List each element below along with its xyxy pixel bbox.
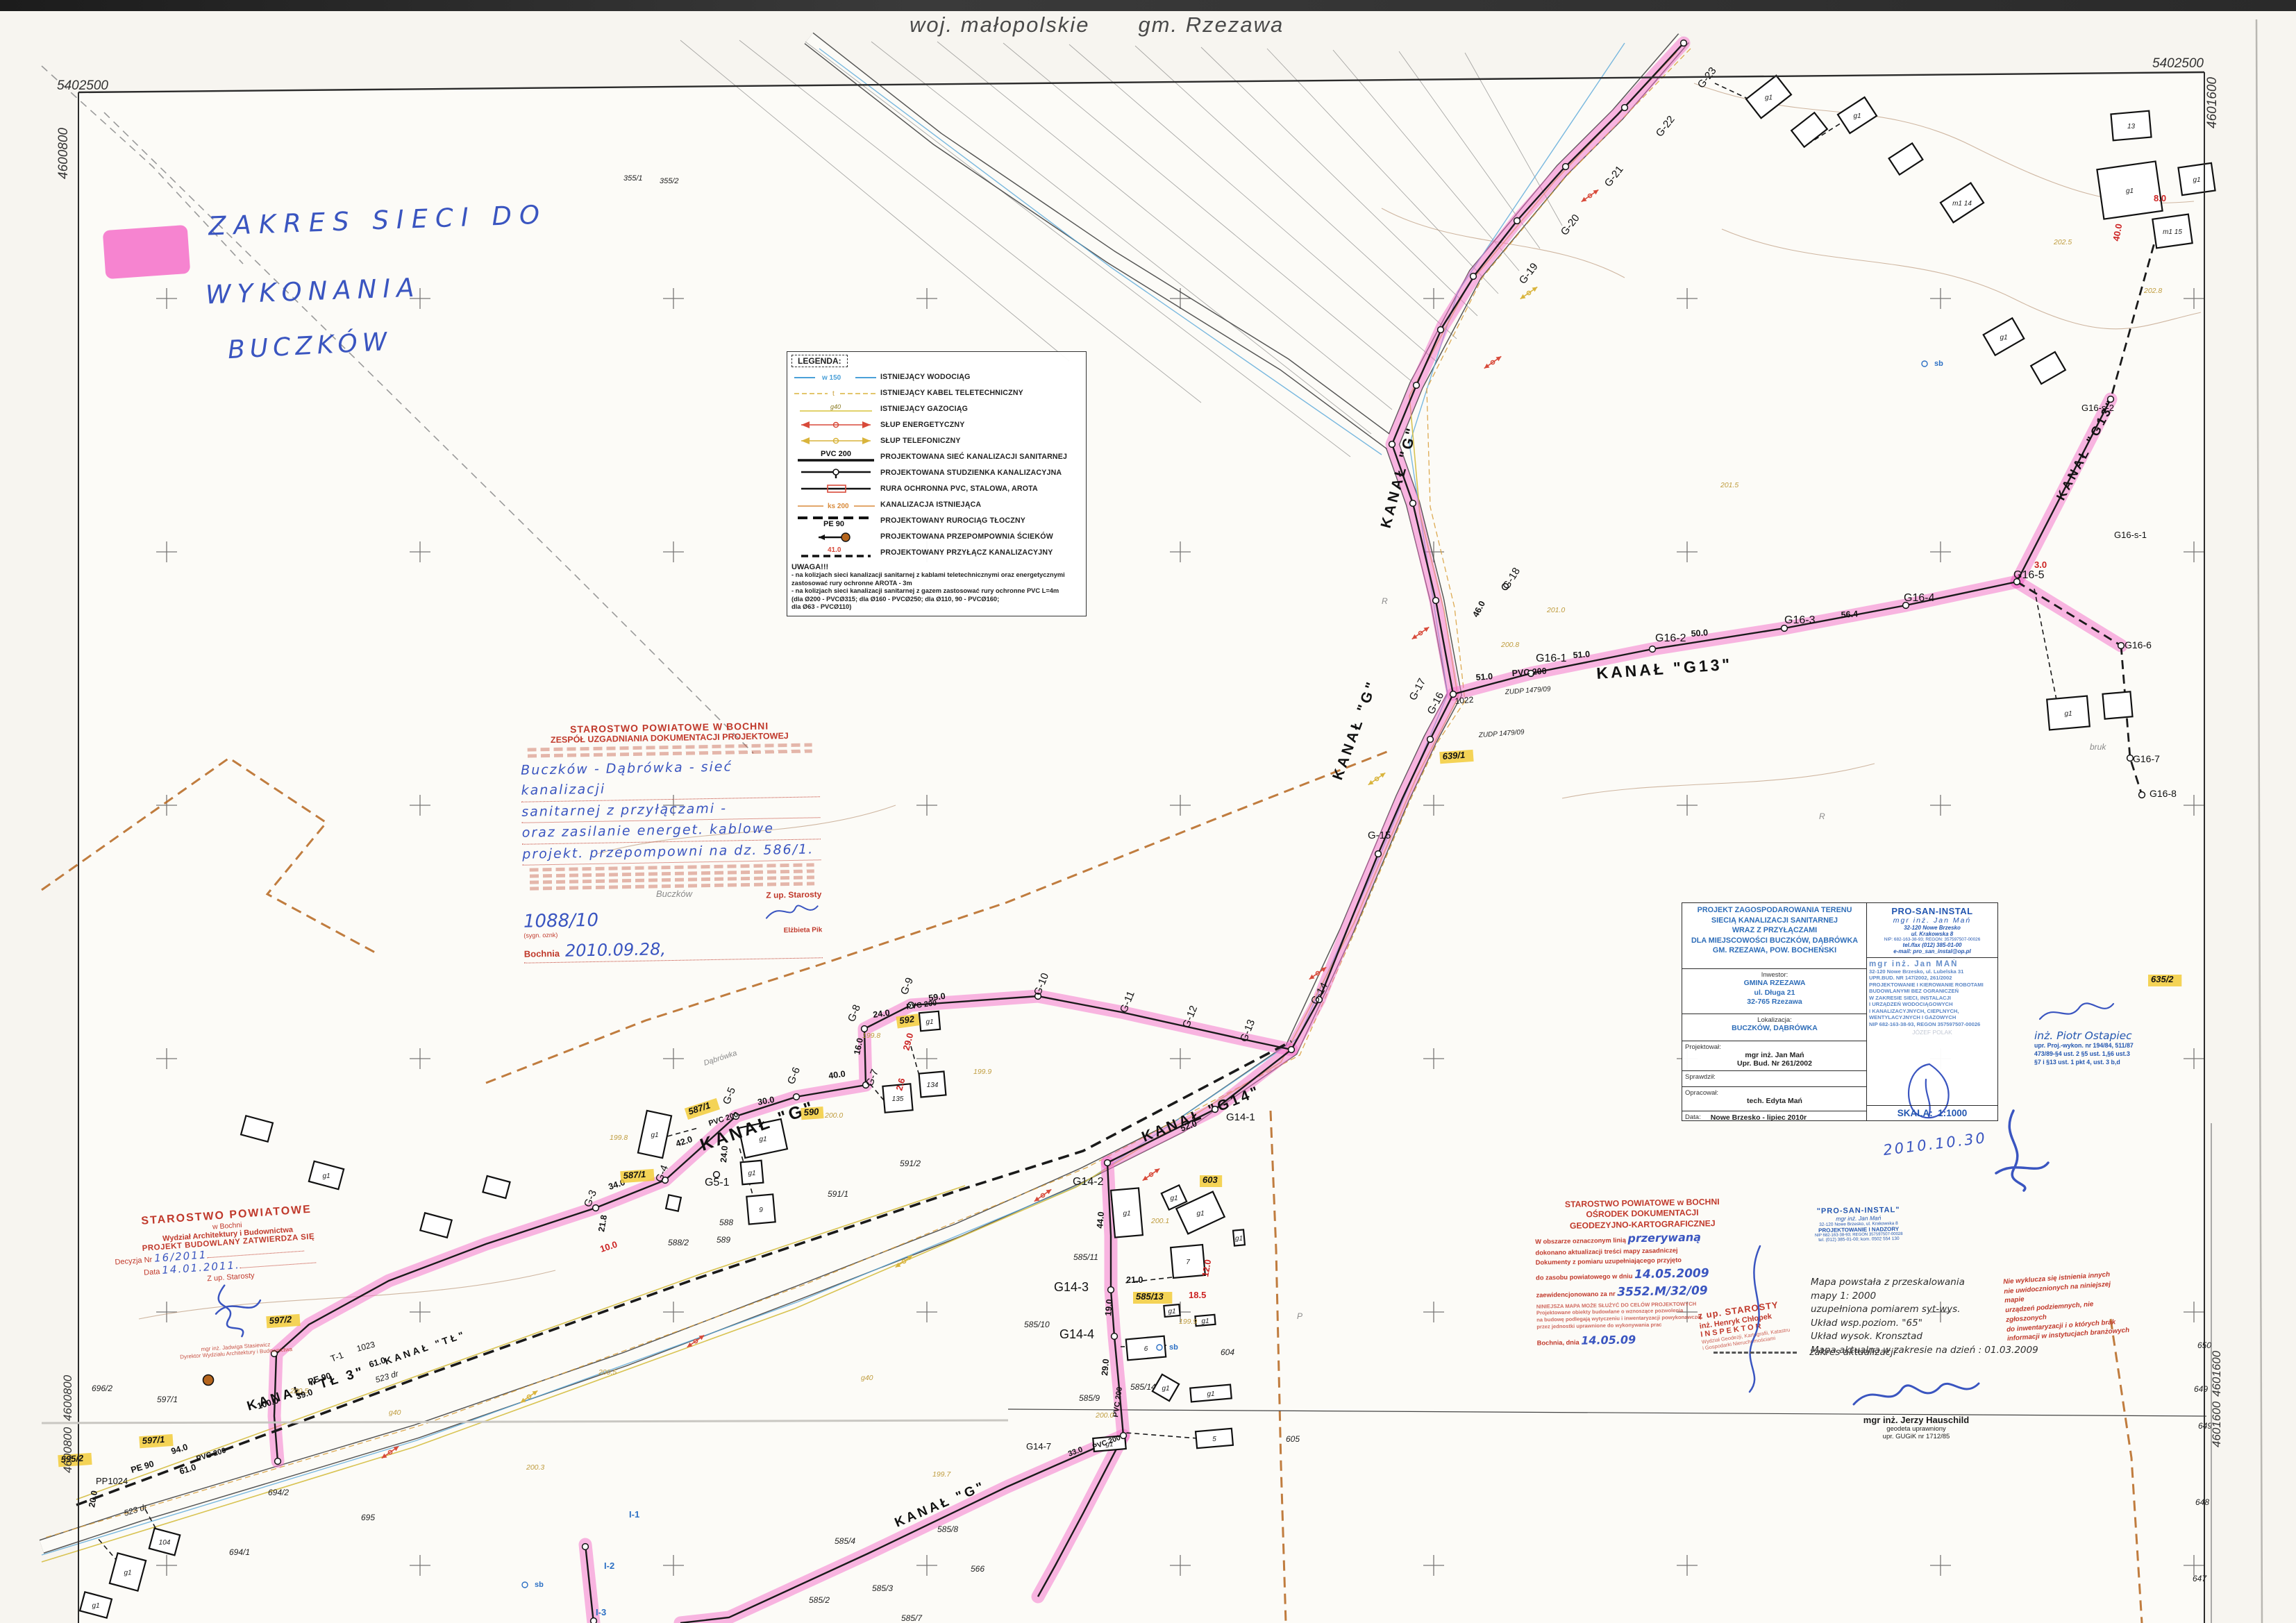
manhole-label: G16-5	[2013, 569, 2045, 581]
manhole-symbol	[794, 1094, 800, 1100]
manhole-symbol	[583, 1544, 589, 1550]
building-label: g1	[322, 1172, 330, 1180]
stamp-caption: (sygn. oznk)	[523, 931, 598, 939]
manhole-symbol	[1514, 218, 1520, 224]
prepared-by-label: Opracował:	[1685, 1089, 1864, 1097]
distance-label: 24.0	[719, 1145, 730, 1163]
designer-label: Projektował:	[1685, 1043, 1864, 1051]
manhole-symbol	[1650, 646, 1656, 653]
elevation-label: 200.5	[290, 1387, 308, 1395]
parcel-number: 566	[971, 1564, 984, 1574]
building-label: g1	[1765, 94, 1773, 102]
parcel-number: 355/1	[623, 174, 643, 183]
building-label: 135	[892, 1095, 904, 1103]
manhole-symbol	[1112, 1334, 1118, 1340]
building-label: g1	[92, 1602, 99, 1610]
parcel-number: 649	[2194, 1384, 2208, 1394]
elevation-label: 200.5	[598, 1368, 617, 1377]
handwritten-date: 2010.09.28,	[565, 939, 667, 961]
manhole-label: G14-7	[1026, 1441, 1051, 1452]
building-label: m1 14	[1952, 200, 1972, 208]
handwritten-agreement-line: projekt. przepompowni na dz. 586/1.	[522, 839, 821, 866]
manhole-symbol	[1414, 382, 1420, 389]
title-block-right: PRO-SAN-INSTAL mgr inż. Jan Mań 32-120 N…	[1866, 902, 1998, 1121]
telecom-line-icon: t	[791, 387, 880, 398]
parcel-number: 592	[898, 1014, 915, 1026]
parcel-number: 694/1	[229, 1547, 250, 1557]
red-annotation: 18.5	[1189, 1290, 1206, 1300]
parcel-number: 635/2	[2151, 974, 2174, 984]
scanned-map-page: g1g1m1 1413g1m1 15g1g1g1g19g1g1135134g1g…	[0, 0, 2296, 1623]
manhole-label: G16-8	[2150, 788, 2177, 799]
legend-item-label: SŁUP ENERGETYCZNY	[880, 421, 965, 429]
manhole-symbol	[1427, 737, 1434, 743]
building-label: g1	[124, 1570, 131, 1577]
manhole-label: PP1024	[96, 1476, 128, 1486]
manhole-label: G5-1	[705, 1177, 730, 1188]
parcel-number: 647	[2193, 1574, 2207, 1583]
elevation-label: 202.5	[2053, 238, 2072, 246]
manhole-symbol	[1289, 1047, 1295, 1053]
building-label: 104	[159, 1539, 171, 1547]
building-label: 5	[1212, 1436, 1216, 1443]
building-label: g1	[1196, 1210, 1204, 1218]
svg-text:ks 200: ks 200	[828, 503, 849, 510]
parcel-number: 585/13	[1136, 1291, 1164, 1302]
coordinate-label: 4601600	[2210, 1350, 2223, 1397]
legend-item: ks 200 KANALIZACJA ISTNIEJĄCA	[791, 496, 1082, 512]
signature	[1975, 1104, 2052, 1194]
region-title: woj. małopolskiegm. Rzezawa	[910, 12, 1332, 37]
parcel-number: 603	[1203, 1175, 1218, 1185]
manhole-symbol	[1563, 164, 1569, 170]
location-label: Lokalizacja:	[1685, 1016, 1864, 1024]
parcel-number: 585/11	[1073, 1252, 1098, 1262]
investor-name: GMINA RZEZAWA	[1685, 979, 1864, 989]
legend-item: t ISTNIEJĄCY KABEL TELETECHNICZNY	[791, 385, 1082, 401]
voivodeship-label: woj. małopolskie	[910, 12, 1089, 37]
building-label: m1 15	[2163, 228, 2182, 236]
scale-value: 1:1000	[1938, 1108, 1967, 1118]
coordinate-label: 4601600	[2210, 1401, 2223, 1447]
elevation-label: g40	[389, 1408, 401, 1417]
legend-note: - na kolizjach sieci kanalizacji sanitar…	[791, 587, 1082, 596]
distance-label: 56.4	[1841, 609, 1858, 620]
phone-pole-icon	[791, 435, 880, 446]
legend-item: PVC 200 PROJEKTOWANA SIEĆ KANALIZACJI SA…	[791, 448, 1082, 464]
investor-address: ul. Długa 21	[1685, 989, 1864, 998]
parcel-number: 639/1	[1442, 750, 1466, 762]
pro-san-instal-stamp: "PRO-SAN-INSTAL" mgr inż. Jan Mań 32-120…	[1800, 1206, 1918, 1243]
coordinate-label: 4601600	[2205, 77, 2220, 128]
manhole-label: G16-1	[1536, 653, 1567, 664]
building-label: g1	[748, 1170, 755, 1177]
project-title-line: GM. RZEZAWA, POW. BOCHEŃSKI	[1685, 945, 1864, 956]
surveyor-signature-block: mgr inż. Jerzy Hauschild geodeta uprawni…	[1847, 1378, 1986, 1440]
building-label: g1	[1207, 1390, 1214, 1398]
handwritten-date: 14.05.09	[1581, 1333, 1636, 1347]
map-label: sb	[1169, 1343, 1178, 1352]
legend-note: (dla Ø200 - PVCØ315; dla Ø160 - PVCØ250;…	[791, 596, 1082, 604]
date-value: Nowe Brzesko - lipiec 2010r	[1711, 1113, 1807, 1122]
designer-stamp-line: W ZAKRESIE SIECI, INSTALACJI	[1869, 995, 1995, 1001]
stamp-signer-name: Elżbieta Pik	[760, 926, 822, 935]
parcel-number: 588/2	[668, 1238, 689, 1247]
building-label: g1	[1201, 1318, 1209, 1325]
legend-item-label: RURA OCHRONNA PVC, STALOWA, AROTA	[880, 485, 1038, 493]
manhole-symbol	[1438, 327, 1444, 333]
update-scope-label: zakres aktualizacji	[1809, 1347, 1895, 1358]
pressure-pipe-icon: PE 90	[791, 514, 880, 528]
handwritten-number: 3552.M/32/09	[1617, 1284, 1708, 1300]
building-label: g1	[1162, 1385, 1169, 1393]
svg-text:41.0: 41.0	[828, 546, 841, 554]
parcel-number: 604	[1221, 1347, 1234, 1357]
manhole-symbol	[1108, 1287, 1114, 1293]
distance-label: 50.0	[1691, 628, 1708, 639]
building-label: g1	[2064, 710, 2072, 718]
manhole-label: G16-4	[1904, 592, 1935, 604]
legend-item-label: PROJEKTOWANA STUDZIENKA KANALIZACYJNA	[880, 469, 1062, 477]
legend-item: SŁUP TELEFONICZNY	[791, 432, 1082, 448]
building-label: g1	[2193, 176, 2200, 184]
projected-sewer-icon: PVC 200	[791, 450, 880, 464]
red-annotation: 8.0	[2154, 193, 2166, 203]
coordinate-label: 4600800	[61, 1374, 74, 1421]
company-email: e-mail: pro_san_instal@op.pl	[1868, 948, 1996, 955]
building-label: g1	[1853, 112, 1861, 120]
distance-label: 51.0	[1475, 671, 1493, 682]
manhole-symbol	[1470, 274, 1477, 280]
legend-item: w 150 ISTNIEJĄCY WODOCIĄG	[791, 369, 1082, 385]
legend-item-label: PROJEKTOWANA PRZEPOMPOWNIA ŚCIEKÓW	[880, 532, 1053, 541]
engineer-license-line: upr. Proj.-wykon. nr 194/84, 511/87	[2034, 1042, 2194, 1050]
parcel-number: 589	[717, 1235, 730, 1245]
legend-note: zastosować rury ochronne AROTA - 3m	[791, 580, 1082, 588]
designer-stamp-name: mgr inż. Jan MAŃ	[1869, 960, 1995, 968]
handwritten-word: przerywaną	[1627, 1230, 1701, 1245]
manhole-label: G16-s-2	[2081, 403, 2114, 413]
elevation-label: 199.8	[862, 1032, 880, 1040]
company-address: 32-120 Nowe Brzesko	[1868, 925, 1996, 931]
manhole-symbol	[2118, 643, 2125, 649]
engineer-license-line: §7 i §13 ust. 1 pkt 4, ust. 3 b,d	[2034, 1059, 2194, 1067]
svg-text:g40: g40	[830, 403, 841, 410]
manhole-icon	[791, 466, 880, 479]
parcel-number: 585/2	[809, 1595, 830, 1605]
stamp-text: do zasobu powiatowego w dniu	[1536, 1272, 1633, 1281]
parcel-number: 695	[361, 1513, 375, 1522]
manhole-symbol	[1433, 598, 1439, 604]
coordinate-label: 4600800	[56, 128, 71, 179]
building-label: 13	[2127, 123, 2136, 131]
map-label: I-3	[596, 1607, 606, 1617]
legend-note-title: UWAGA!!!	[791, 563, 1082, 571]
coordinate-label: 4600800	[61, 1427, 74, 1473]
company-name: PRO-SAN-INSTAL	[1868, 906, 1996, 916]
designer-license: Upr. Bud. Nr 261/2002	[1685, 1059, 1864, 1068]
manhole-label: 1022	[1455, 695, 1474, 706]
map-note-line: Układ wysok. Kronsztad	[1811, 1330, 2040, 1344]
company-phone: tel./fax (012) 385-01-00	[1868, 942, 1996, 948]
manhole-label: G16-3	[1784, 614, 1816, 626]
legend-item-label: PROJEKTOWANA SIEĆ KANALIZACJI SANITARNEJ	[880, 453, 1067, 461]
distance-label: 51.0	[1573, 649, 1590, 660]
parcel-number: 585/9	[1079, 1393, 1100, 1403]
elevation-label: 201.5	[1720, 481, 1738, 489]
designer-stamp-line: BUDOWLANYMI BEZ OGRANICZEŃ	[1869, 988, 1995, 994]
location-value: BUCZKÓW, DĄBRÓWKA	[1685, 1024, 1864, 1034]
parcel-number: 355/2	[660, 177, 679, 185]
investor-label: Inwestor:	[1685, 971, 1864, 979]
parcel-number: 585/10	[1024, 1320, 1050, 1329]
elevation-label: g40	[861, 1374, 873, 1382]
map-label: bruk	[2090, 742, 2106, 752]
surveyor-license: upr. GUGiK nr 1712/85	[1847, 1433, 1986, 1440]
building-label: 134	[927, 1082, 939, 1089]
designer-stamp-line: I URZĄDZEŃ WODOCIĄGOWYCH	[1869, 1001, 1995, 1007]
manhole-label: G14-4	[1059, 1327, 1094, 1341]
project-title-line: DLA MIEJSCOWOŚCI BUCZKÓW, DĄBRÓWKA	[1685, 936, 1864, 946]
water-line-icon: w 150	[791, 371, 880, 382]
manhole-label: G16-2	[1655, 632, 1686, 644]
house-connection-icon: 41.0	[791, 546, 880, 560]
designer-stamp-line: 32-120 Nowe Brzesko, ul. Lubelska 31	[1869, 968, 1995, 975]
existing-sewer-icon: ks 200	[791, 499, 880, 510]
elevation-label: 199.7	[932, 1470, 951, 1479]
manhole-symbol	[1622, 105, 1628, 111]
svg-text:w 150: w 150	[821, 374, 841, 382]
date-label: Data:	[1685, 1113, 1701, 1122]
legend-title: LEGENDA:	[791, 355, 848, 367]
manhole-label: G14-2	[1073, 1176, 1104, 1188]
svg-text:PE 90: PE 90	[823, 520, 844, 528]
map-label: sb	[535, 1581, 544, 1589]
legend-note: - na kolizjach sieci kanalizacji sanitar…	[791, 571, 1082, 580]
building-label: g1	[651, 1132, 658, 1139]
parcel-number: 648	[2195, 1497, 2209, 1507]
elevation-label: 200.1	[1150, 1217, 1169, 1225]
building-label: 6	[1144, 1345, 1148, 1353]
building-permit-stamp: STAROSTWO POWIATOWE w Bochni Wydział Arc…	[112, 1202, 351, 1365]
manhole-label: G16-s-1	[2114, 530, 2147, 540]
building	[2103, 691, 2133, 718]
parcel-number: 605	[1286, 1434, 1300, 1444]
designer-stamp-line: UPR.BUD. NR 147/2002, 261/2002	[1869, 975, 1995, 981]
manhole-symbol	[2139, 792, 2145, 798]
pink-highlighter-swatch	[103, 225, 191, 279]
elevation-label: 201.0	[1546, 606, 1565, 614]
date-label: Data	[144, 1268, 160, 1277]
parcel-number: 696/2	[92, 1384, 112, 1393]
stamp-text: W obszarze oznaczonym linią	[1535, 1236, 1626, 1245]
svg-text:t: t	[832, 390, 835, 398]
elevation-label: 200.0	[824, 1111, 843, 1120]
legend-item: PROJEKTOWANA STUDZIENKA KANALIZACYJNA	[791, 464, 1082, 480]
signature	[1722, 1243, 1784, 1395]
legend-item-label: SŁUP TELEFONICZNY	[880, 437, 961, 445]
map-label: P	[1297, 1311, 1302, 1321]
manhole-symbol	[591, 1618, 597, 1623]
legend-item: RURA OCHRONNA PVC, STALOWA, AROTA	[791, 480, 1082, 496]
pump-station-symbol	[203, 1375, 214, 1386]
signature	[1847, 1378, 1986, 1411]
manhole-label: G16-7	[2133, 753, 2160, 764]
project-title-line: PROJEKT ZAGOSPODAROWANIA TERENU	[1685, 905, 1864, 916]
building-label: g1	[925, 1018, 933, 1026]
elevation-label: 200.3	[526, 1463, 544, 1472]
parcel-number: 585/7	[901, 1613, 923, 1623]
legend-item: PROJEKTOWANA PRZEPOMPOWNIA ŚCIEKÓW	[791, 528, 1082, 544]
manhole-symbol	[1410, 501, 1416, 507]
building-label: g1	[1235, 1235, 1243, 1243]
manhole-label: G16-6	[2125, 639, 2152, 650]
svg-text:PVC 200: PVC 200	[821, 450, 851, 458]
stamp-text: zaewidencjonowano za nr	[1536, 1290, 1615, 1299]
building-label: g1	[1170, 1195, 1178, 1202]
map-label: R	[1382, 596, 1388, 606]
building-label: 9	[759, 1206, 763, 1214]
elevation-label: 199.9	[973, 1068, 991, 1076]
elevation-label: 199.9	[1179, 1318, 1197, 1326]
update-scope-note: zakres aktualizacji	[1713, 1347, 1896, 1358]
building-label: g1	[1123, 1210, 1130, 1218]
legend-box: LEGENDA: w 150 ISTNIEJĄCY WODOCIĄG t IST…	[787, 351, 1087, 616]
title-block: PROJEKT ZAGOSPODAROWANIA TERENU SIECIĄ K…	[1682, 902, 1868, 1121]
engineer-license-line: 473/89-§4 ust. 2 §5 ust. 1,§6 ust.3	[2034, 1050, 2194, 1059]
legend-item-label: KANALIZACJA ISTNIEJĄCA	[880, 501, 981, 509]
pump-station-icon	[791, 531, 880, 542]
building-label: g1	[759, 1136, 766, 1143]
parcel-number: 597/1	[157, 1395, 178, 1404]
parcel-number: 694/2	[268, 1488, 289, 1497]
coordinate-label: 5402500	[2152, 56, 2204, 71]
zudp-stamp: STAROSTWO POWIATOWE W BOCHNI ZESPÓŁ UZGA…	[520, 719, 823, 964]
scan-edge	[2256, 19, 2262, 1623]
casing-pipe-icon	[791, 483, 880, 494]
manhole-label: G14-3	[1054, 1280, 1089, 1294]
prepared-by-name: tech. Edyta Mań	[1685, 1097, 1864, 1105]
parcel-number: 585/8	[937, 1524, 958, 1534]
company-address: ul. Krakowska 8	[1868, 931, 1996, 937]
manhole-symbol	[275, 1458, 281, 1465]
ostapiec-stamp: inż. Piotr Ostapiec upr. Proj.-wykon. nr…	[2034, 998, 2194, 1067]
legend-item-label: PROJEKTOWANY RUROCIĄG TŁOCZNY	[880, 516, 1025, 525]
scale-label: SKALA:	[1897, 1108, 1933, 1118]
map-label: R	[1819, 811, 1825, 821]
coordinate-label: 5402500	[57, 78, 108, 93]
checker-label: Sprawdził:	[1685, 1073, 1864, 1081]
commune-label: gm. Rzezawa	[1138, 12, 1284, 37]
handwritten-reference-number: 1088/10	[523, 910, 599, 932]
elevation-label: 202.8	[2143, 287, 2162, 295]
building-label: 7	[1186, 1259, 1190, 1266]
legend-item-label: ISTNIEJĄCY GAZOCIĄG	[880, 405, 968, 413]
designer-stamp-line: PROJEKTOWANIE I KIEROWANIE ROBOTAMI	[1869, 982, 1995, 988]
signature	[760, 899, 823, 924]
manhole-label: G-15	[1368, 830, 1391, 841]
legend-item: g40 ISTNIEJĄCY GAZOCIĄG	[791, 401, 1082, 417]
stamp-city-label: Bochnia, dnia	[1537, 1339, 1579, 1347]
building-label: g1	[2000, 334, 2007, 342]
manhole-symbol	[1681, 40, 1687, 47]
legend-item-label: ISTNIEJĄCY WODOCIĄG	[880, 373, 971, 381]
manhole-label: G14-1	[1226, 1111, 1255, 1123]
map-label: I-2	[604, 1561, 614, 1571]
manhole-symbol	[1389, 442, 1396, 448]
legend-item-label: PROJEKTOWANY PRZYŁĄCZ KANALIZACYJNY	[880, 548, 1053, 557]
power-pole-icon	[791, 419, 880, 430]
stamp-city-label: Bochnia	[524, 948, 560, 959]
dashed-line-sample	[1713, 1352, 1797, 1354]
overlapping-stamp-name: JÓZEF POLAK	[1869, 1029, 1995, 1036]
investor-address: 32-765 Rzezawa	[1685, 998, 1864, 1007]
designer-stamp-line: WENTYLACYJNYCH I GAZOWYCH	[1869, 1014, 1995, 1020]
manhole-symbol	[1375, 851, 1382, 857]
handwritten-date: 14.05.2009	[1634, 1266, 1709, 1281]
legend-item: 41.0 PROJEKTOWANY PRZYŁĄCZ KANALIZACYJNY	[791, 544, 1082, 560]
surveyor-name: mgr inż. Jerzy Hauschild	[1847, 1415, 1986, 1425]
manhole-symbol	[1105, 1160, 1111, 1166]
designer-stamp-line: I KANALIZACYJNYCH, CIEPLNYCH,	[1869, 1008, 1995, 1014]
parcel-number: 591/1	[828, 1189, 848, 1199]
engineer-name: inż. Piotr Ostapiec	[2034, 1029, 2194, 1042]
distance-label: 29.0	[1100, 1359, 1111, 1377]
building-label: g1	[1168, 1308, 1175, 1315]
handwritten-agreement-line: Buczków - Dąbrówka - sieć kanalizacji	[521, 755, 820, 802]
building	[666, 1195, 681, 1211]
legend-item: PE 90 PROJEKTOWANY RUROCIĄG TŁOCZNY	[791, 512, 1082, 528]
distance-label: 19.0	[1103, 1299, 1114, 1317]
parcel-number: 591/2	[900, 1159, 921, 1168]
manhole-symbol	[1121, 1433, 1127, 1439]
parcel-number: 588	[719, 1218, 733, 1227]
parcel-number: 597/1	[142, 1434, 165, 1446]
gas-line-icon: g40	[791, 403, 880, 414]
elevation-label: 200.0	[1095, 1411, 1114, 1420]
pro-san-instal-card: PRO-SAN-INSTAL mgr inż. Jan Mań 32-120 N…	[1867, 903, 1997, 958]
project-title-line: WRAZ Z PRZYŁĄCZAMI	[1685, 925, 1864, 936]
parcel-number: 585/14	[1130, 1382, 1156, 1392]
parcel-number: 587/1	[623, 1169, 646, 1181]
distance-label: 44.0	[1095, 1211, 1106, 1229]
underground-utilities-disclaimer: Nie wyklucza się istnienia innych nie uw…	[2003, 1269, 2132, 1344]
project-title-line: SIECIĄ KANALIZACJI SANITARNEJ	[1685, 916, 1864, 926]
building-label: g1	[2126, 187, 2134, 195]
designer-stamp-line: NIP 682-163-38-93, REGON 357597507-00026	[1869, 1021, 1995, 1027]
signature	[2034, 998, 2118, 1026]
company-person: mgr inż. Jan Mań	[1868, 916, 1996, 925]
distance-label: 21.0	[1126, 1275, 1143, 1285]
company-ids: NIP: 682-163-38-93; REGON: 357597507-000…	[1868, 937, 1996, 942]
parcel-number: 585/4	[835, 1536, 855, 1546]
map-label: sb	[1934, 360, 1943, 368]
red-annotation: 3.0	[2034, 560, 2047, 570]
elevation-label: 199.8	[610, 1134, 628, 1142]
parcel-number: 590	[803, 1106, 819, 1118]
map-label: I-1	[629, 1509, 639, 1520]
signature	[183, 1278, 284, 1344]
surveyor-role: geodeta uprawniony	[1847, 1425, 1986, 1433]
designer-name: mgr inż. Jan Mań	[1685, 1051, 1864, 1059]
legend-note: dla Ø63 - PVCØ110)	[791, 603, 1082, 612]
parcel-number: 585/3	[872, 1583, 893, 1593]
legend-item-label: ISTNIEJĄCY KABEL TELETECHNICZNY	[880, 389, 1023, 397]
legend-item: SŁUP ENERGETYCZNY	[791, 417, 1082, 432]
elevation-label: 200.8	[1500, 641, 1519, 649]
